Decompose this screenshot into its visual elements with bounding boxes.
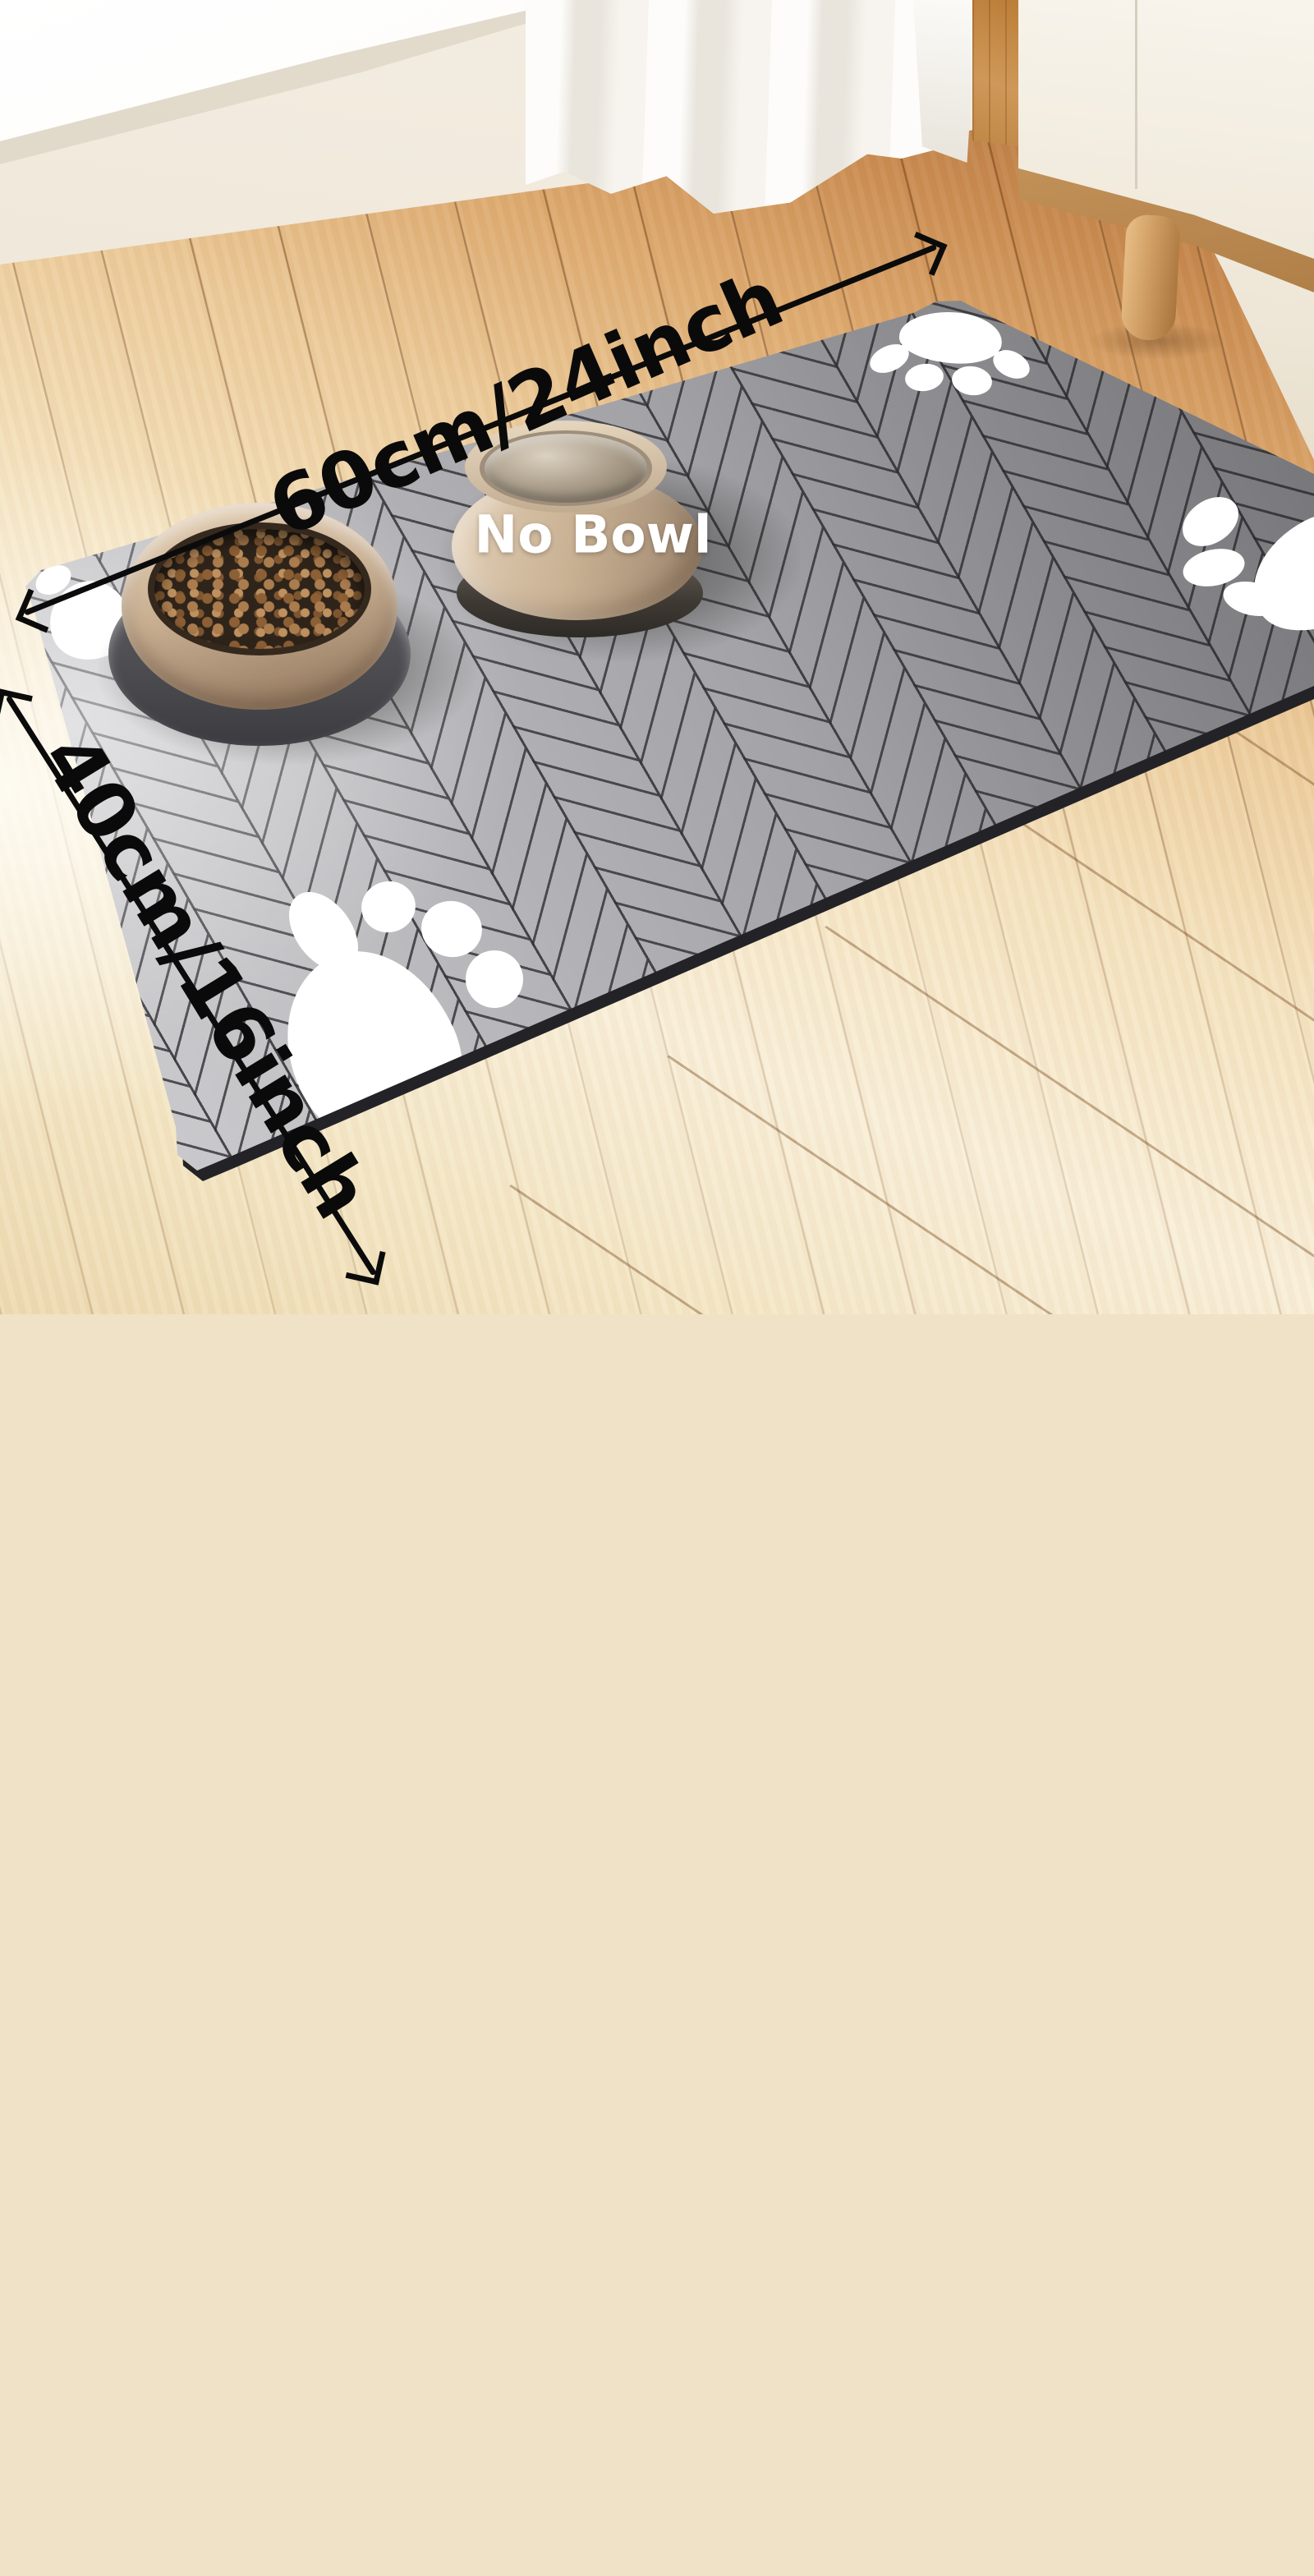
- paw-toe: [903, 361, 945, 393]
- arrowhead-down-icon: [346, 1245, 386, 1286]
- curtain-tail: [913, 0, 977, 163]
- product-photo-pet-feeding-mat: { "scene": { "description": "E-commerce …: [0, 0, 1314, 1314]
- paw-toe: [416, 895, 488, 963]
- no-bowl-label: No Bowl: [474, 505, 711, 565]
- paw-toe: [1174, 487, 1247, 556]
- cabinet-door-seam: [1135, 0, 1137, 189]
- paw-toe: [950, 364, 994, 398]
- paw-toe: [356, 876, 420, 938]
- paw-pad: [1232, 488, 1314, 654]
- cabinet-wood-leg: [1120, 214, 1181, 341]
- paw-pad: [898, 309, 1004, 367]
- paw-print-right-icon: [1170, 489, 1314, 632]
